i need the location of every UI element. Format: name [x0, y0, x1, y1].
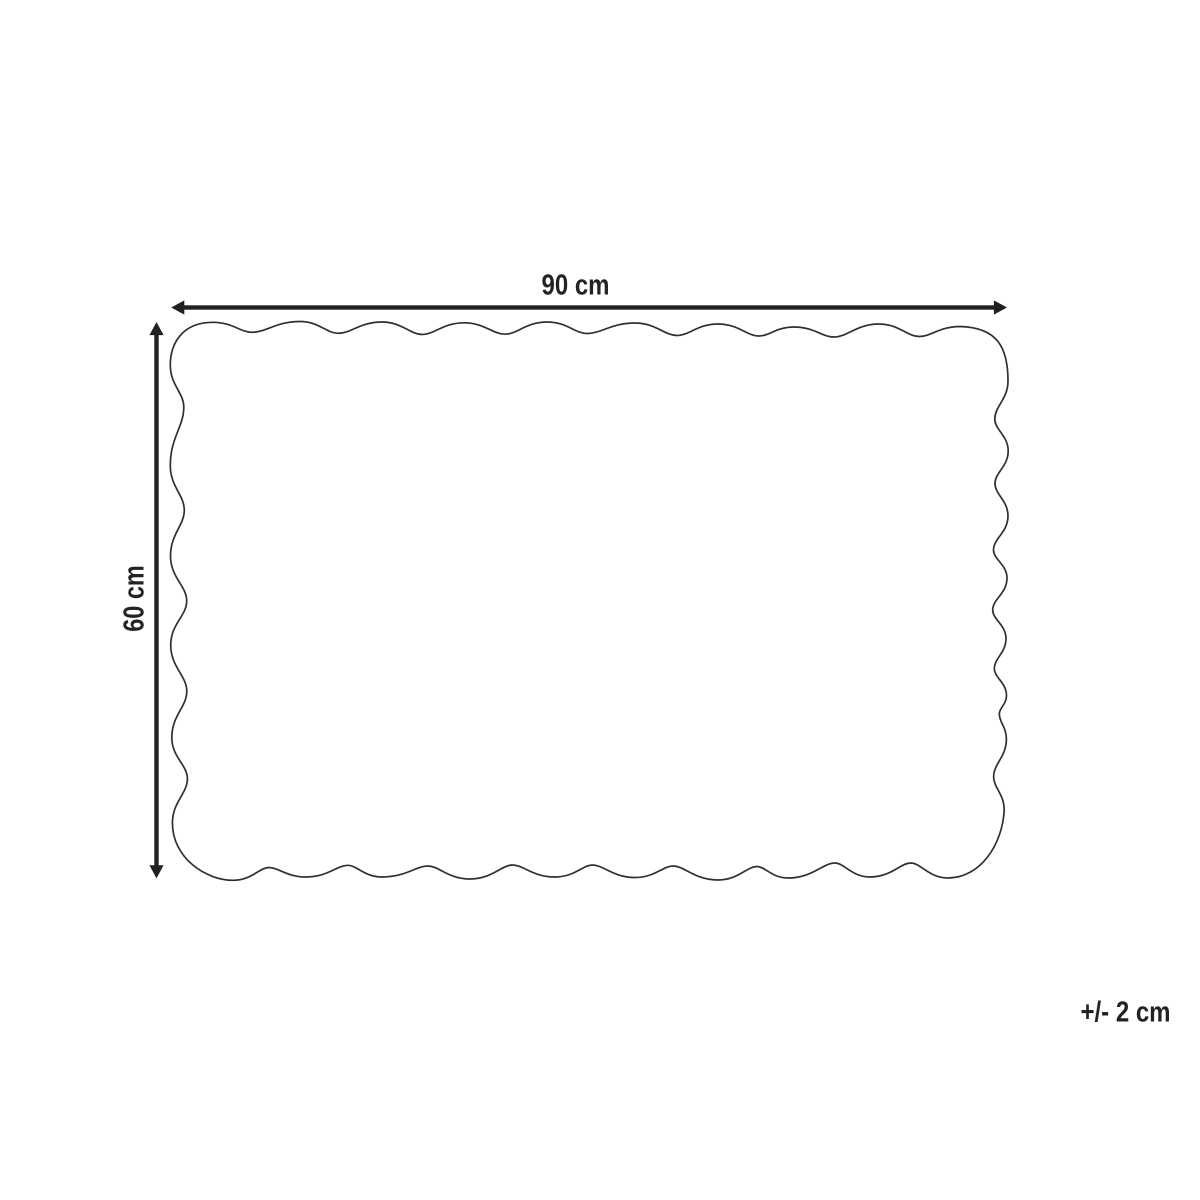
svg-text:+/- 2 cm: +/- 2 cm [1081, 997, 1171, 1029]
svg-text:90 cm: 90 cm [542, 270, 610, 302]
svg-text:60 cm: 60 cm [119, 565, 151, 632]
